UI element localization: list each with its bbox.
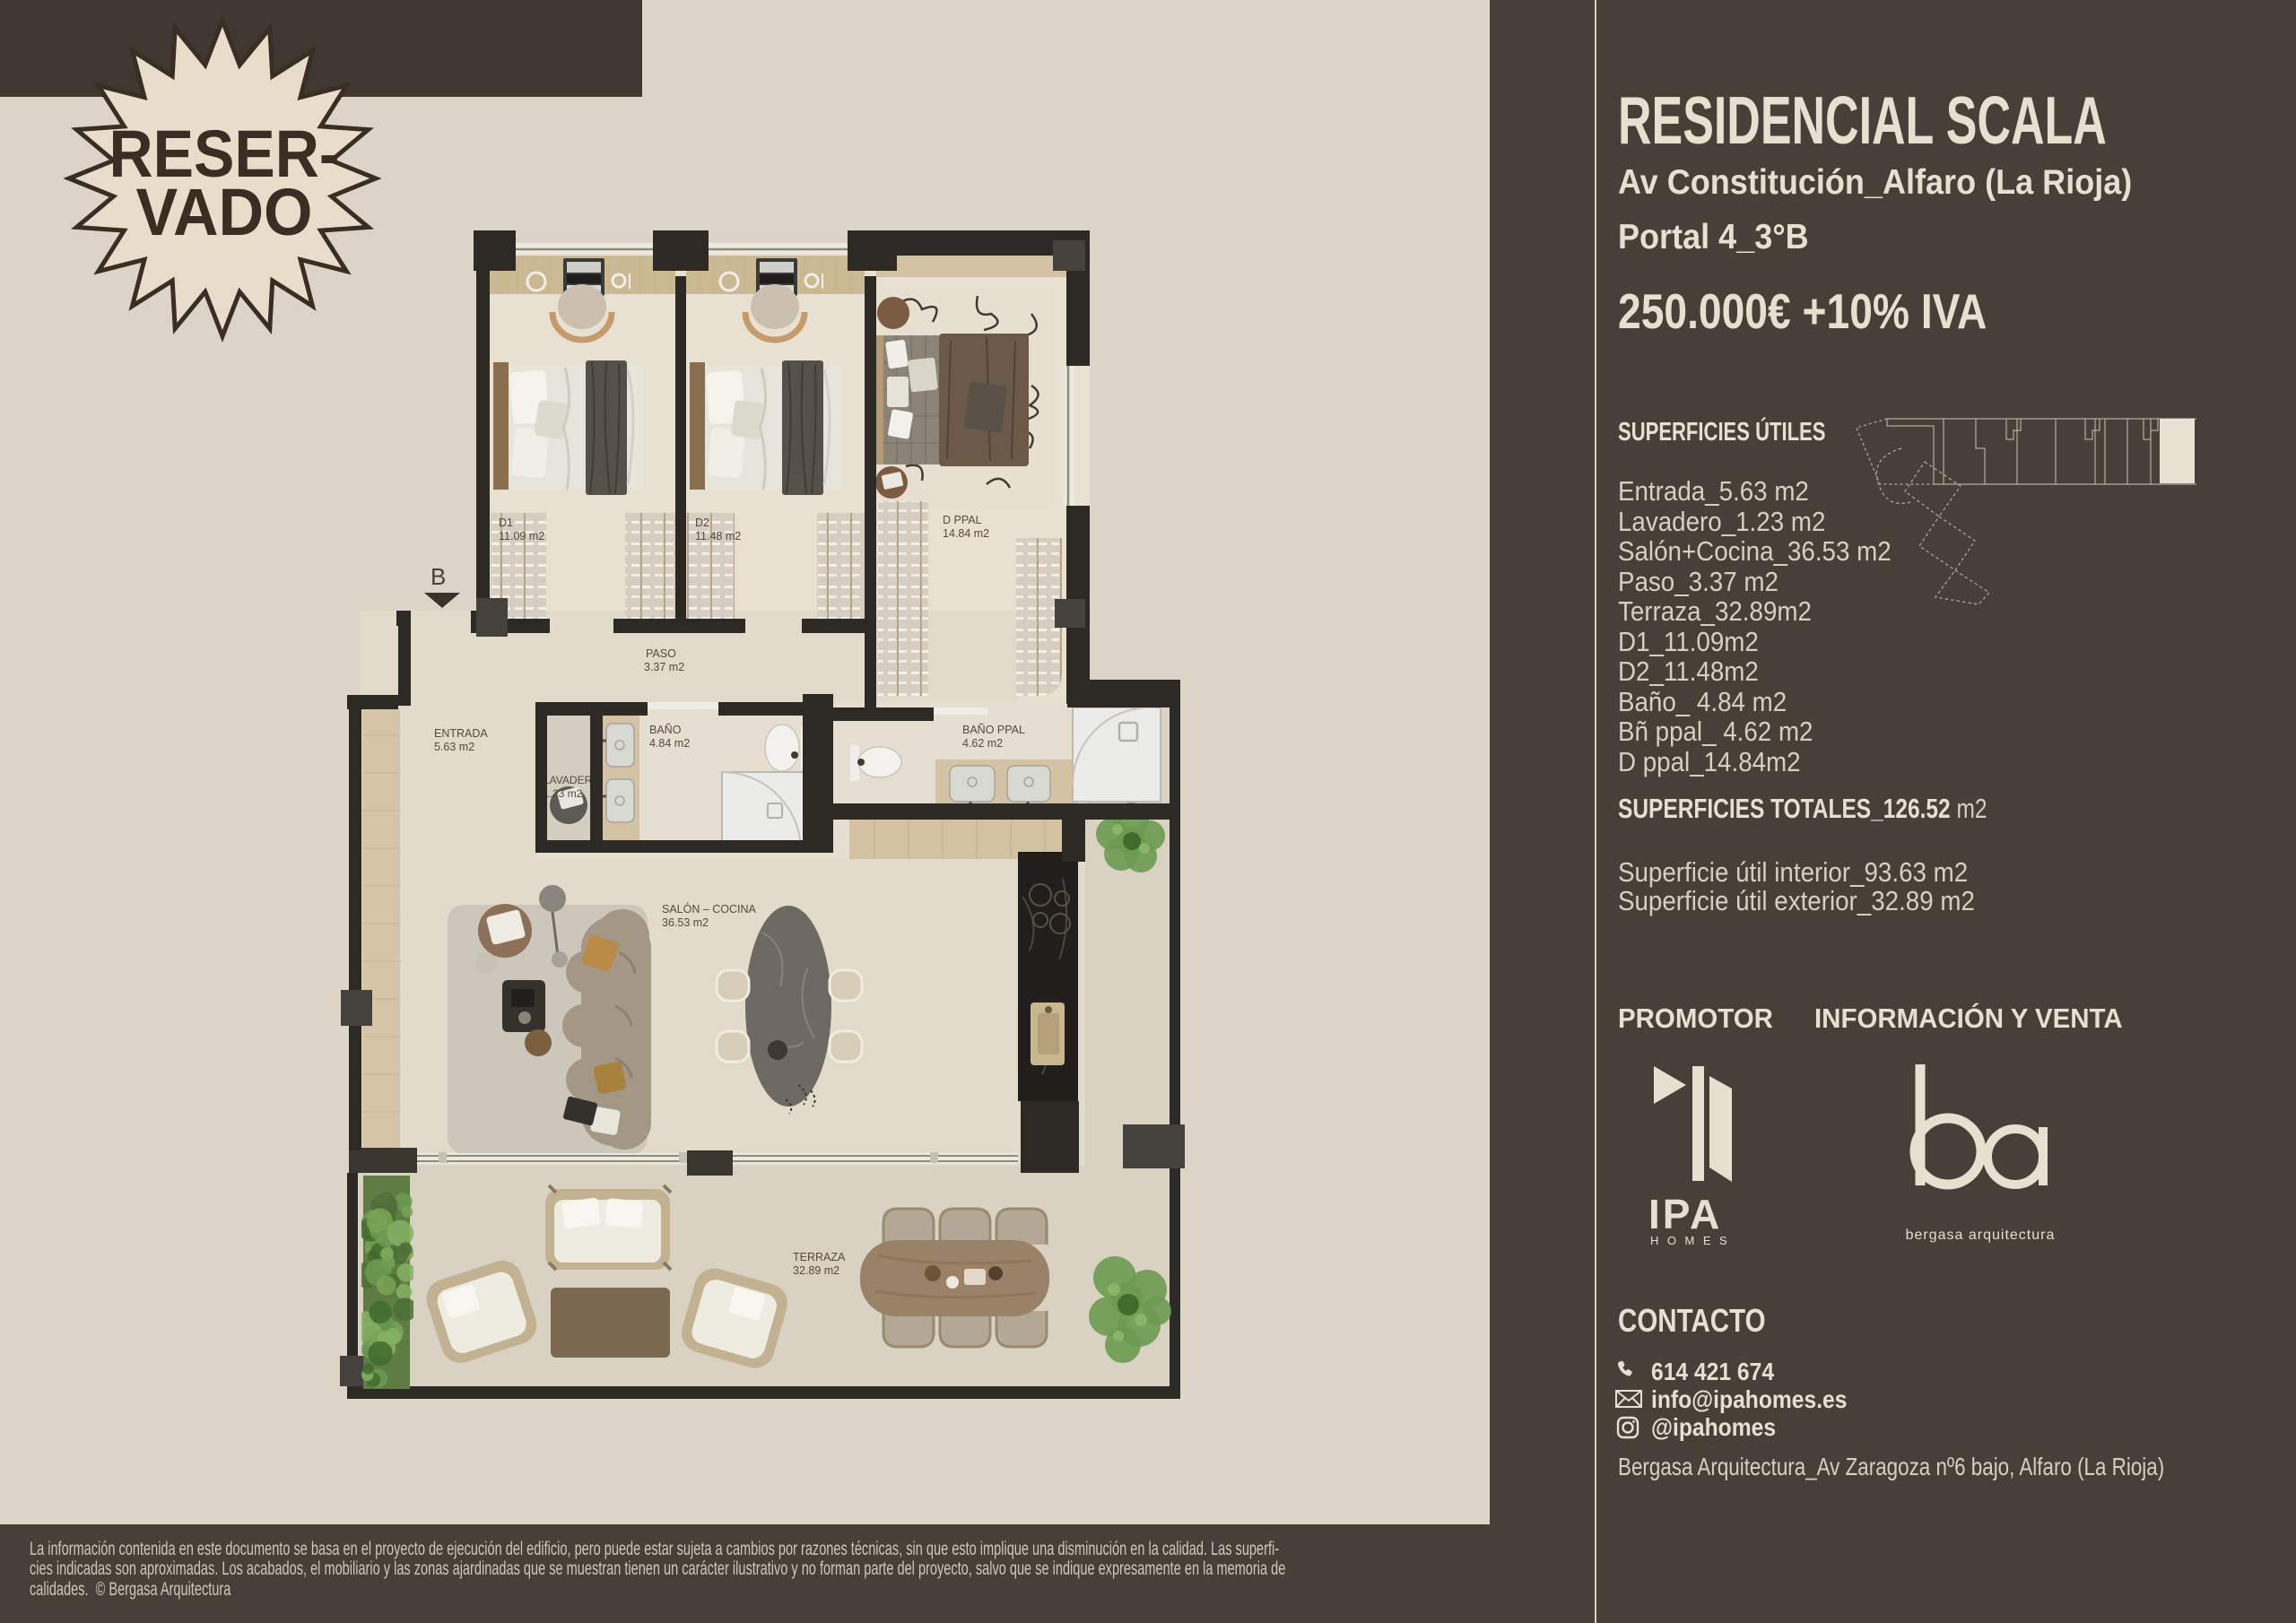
svg-text:14.84 m2: 14.84 m2 <box>943 527 989 540</box>
svg-text:11.48 m2: 11.48 m2 <box>695 530 741 542</box>
svg-text:3.37 m2: 3.37 m2 <box>644 661 684 673</box>
svg-text:BAÑO PPAL: BAÑO PPAL <box>962 724 1025 736</box>
svg-text:D PPAL: D PPAL <box>943 514 982 526</box>
svg-text:D2: D2 <box>695 516 709 529</box>
svg-text:4.62 m2: 4.62 m2 <box>962 737 1003 750</box>
svg-text:11.09 m2: 11.09 m2 <box>499 530 544 542</box>
svg-text:TERRAZA: TERRAZA <box>793 1251 846 1263</box>
svg-text:ENTRADA: ENTRADA <box>434 727 488 740</box>
svg-text:32.89 m2: 32.89 m2 <box>793 1264 839 1277</box>
svg-text:HOMES: HOMES <box>1650 1234 1735 1247</box>
svg-text:5.63 m2: 5.63 m2 <box>434 741 474 753</box>
svg-text:IPA: IPA <box>1648 1191 1722 1237</box>
svg-text:PASO: PASO <box>646 647 676 660</box>
svg-text:B: B <box>430 563 446 590</box>
svg-text:36.53 m2: 36.53 m2 <box>662 916 709 929</box>
svg-text:SALÓN – COCINA: SALÓN – COCINA <box>662 902 757 916</box>
svg-text:4.84 m2: 4.84 m2 <box>649 737 690 750</box>
svg-text:bergasa arquitectura: bergasa arquitectura <box>1906 1228 2056 1243</box>
svg-text:VADO: VADO <box>136 175 313 249</box>
svg-text:BAÑO: BAÑO <box>649 724 682 736</box>
svg-text:1.23 m2: 1.23 m2 <box>544 787 583 800</box>
svg-text:D1: D1 <box>499 516 513 529</box>
